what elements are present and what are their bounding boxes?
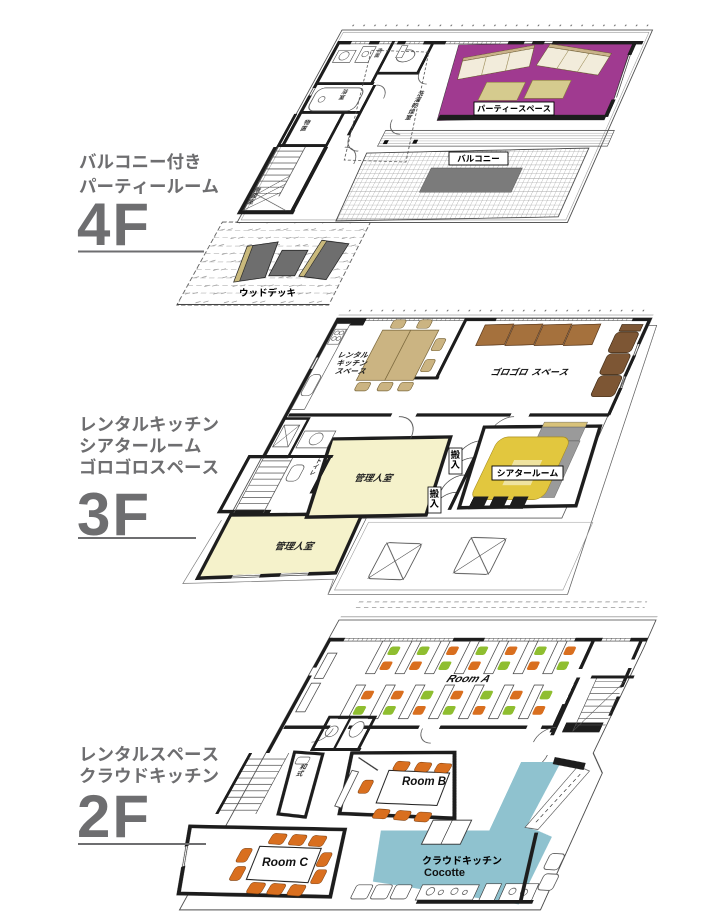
svg-text:Cocotte: Cocotte: [424, 867, 465, 879]
svg-text:2F: 2F: [77, 783, 151, 850]
svg-text:Room B: Room B: [402, 776, 446, 788]
svg-text:Room C: Room C: [262, 855, 308, 869]
svg-text:4F: 4F: [77, 191, 151, 258]
